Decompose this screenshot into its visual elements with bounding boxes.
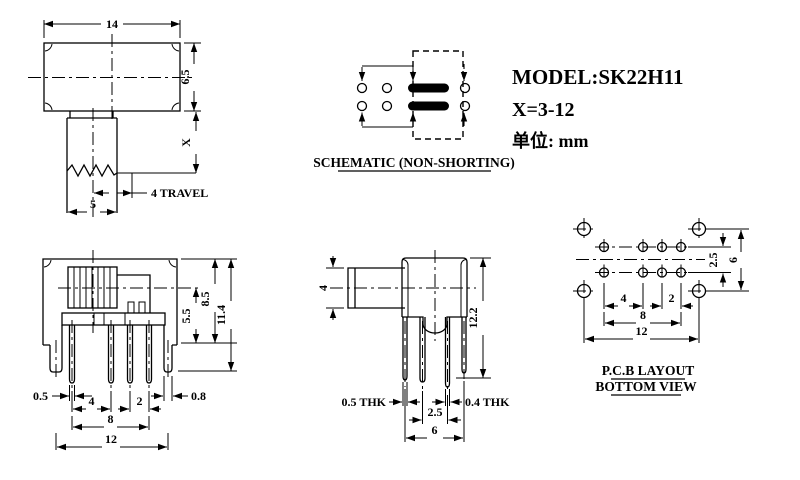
dim-front-row-offset: 5.5: [179, 309, 193, 324]
dim-top-shaft-x: X: [179, 138, 193, 147]
side-view: 4 12.2 0.5 THK 0.4 THK 2.5 6: [316, 250, 510, 442]
title-block: MODEL:SK22H11 X=3-12 单位: mm: [512, 65, 684, 151]
schematic-caption: SCHEMATIC (NON-SHORTING): [313, 155, 514, 170]
dim-pcb-row-pitch: 2.5: [706, 253, 720, 268]
drawing-canvas: 14 6.5 X 4 TRAVEL 5: [0, 0, 800, 480]
dim-front-pin-thk: 0.5: [33, 389, 48, 403]
dim-pcb-pin-span: 8: [640, 308, 646, 322]
technical-drawing-page: 14 6.5 X 4 TRAVEL 5: [0, 0, 800, 480]
model-number: MODEL:SK22H11: [512, 65, 684, 89]
dim-top-knob-width: 5: [90, 197, 96, 211]
dim-side-depth: 6: [432, 423, 438, 437]
dim-pcb-mount-v: 6: [726, 257, 740, 263]
dim-side-rear-thk: 0.4 THK: [465, 395, 510, 409]
dim-pcb-mount-span: 12: [636, 324, 648, 338]
schematic-view: SCHEMATIC (NON-SHORTING): [313, 51, 514, 171]
dim-top-body-height: 6.5: [178, 70, 192, 85]
dim-side-knob-height: 4: [316, 285, 330, 291]
dim-front-body-height: 8.5: [198, 292, 212, 307]
pcb-layout-view: 4 2 8 12 2.5 6 P.C.B LAYOUT BOTTOM VIEW: [573, 218, 749, 395]
dim-side-total-height: 12.2: [466, 308, 480, 329]
dim-front-pitch-a: 4: [89, 394, 95, 408]
front-view: 8.5 5.5 11.4 0.5 0.8 4 2 8 12: [33, 250, 237, 450]
contact-bar-bottom: [408, 102, 449, 111]
unit-note: 单位: mm: [512, 130, 588, 151]
x-range: X=3-12: [512, 99, 575, 121]
pcb-caption-line2: BOTTOM VIEW: [595, 379, 697, 394]
dim-pcb-pitch-b: 2: [669, 291, 675, 305]
dim-pcb-pitch-a: 4: [621, 291, 627, 305]
top-view: 14 6.5 X 4 TRAVEL 5: [28, 17, 208, 218]
dim-side-row-pitch: 2.5: [428, 405, 443, 419]
dim-side-front-thk: 0.5 THK: [342, 395, 387, 409]
dim-front-total-height: 11.4: [214, 305, 228, 325]
dim-front-leg-span: 12: [105, 432, 117, 446]
contact-bar-top: [408, 84, 449, 93]
dim-top-body-width: 14: [106, 17, 118, 31]
dim-top-travel: 4 TRAVEL: [151, 186, 208, 200]
dim-front-pin-span: 8: [108, 412, 114, 426]
pcb-caption-line1: P.C.B LAYOUT: [602, 363, 694, 378]
dim-front-leg-thk: 0.8: [191, 389, 206, 403]
dim-front-pitch-b: 2: [137, 394, 143, 408]
